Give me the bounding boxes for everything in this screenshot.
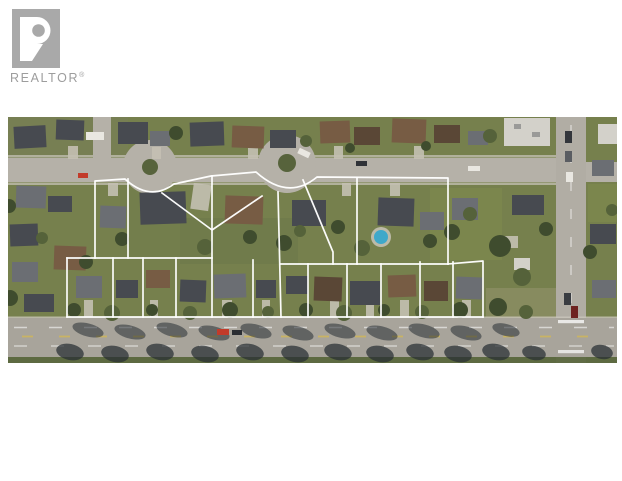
pool	[374, 230, 388, 244]
tree	[423, 234, 437, 248]
car	[232, 330, 242, 335]
tree	[513, 268, 531, 286]
tree	[539, 222, 553, 236]
tree	[378, 304, 390, 316]
tree	[583, 245, 597, 259]
driveway	[190, 183, 211, 211]
house	[190, 121, 225, 146]
tree	[299, 303, 313, 317]
house	[592, 160, 614, 176]
rv	[86, 132, 104, 140]
south-verge	[8, 357, 617, 363]
tree	[489, 298, 507, 316]
house	[13, 125, 46, 149]
house	[116, 280, 138, 298]
tree	[222, 302, 238, 318]
tree	[606, 204, 618, 216]
house	[598, 124, 617, 144]
house	[48, 196, 72, 212]
house	[420, 212, 444, 230]
tree	[67, 303, 81, 317]
house	[512, 195, 544, 215]
car	[78, 173, 88, 178]
crosswalk	[558, 350, 584, 353]
cul-de-sac-island	[278, 154, 296, 172]
tree	[169, 126, 183, 140]
tree	[336, 305, 352, 321]
house	[16, 185, 47, 208]
driveway	[108, 183, 118, 196]
tree	[345, 143, 355, 153]
tree	[300, 135, 312, 147]
house	[139, 191, 186, 225]
house	[214, 273, 247, 298]
tree	[421, 141, 431, 151]
house	[320, 120, 351, 143]
tree	[483, 129, 497, 143]
tree	[2, 199, 16, 213]
listing-image: REALTOR®	[0, 0, 622, 481]
driveway	[390, 183, 400, 196]
tree	[452, 302, 468, 318]
tree	[463, 207, 477, 221]
house	[146, 270, 170, 288]
car	[571, 306, 578, 318]
car	[565, 131, 572, 143]
car	[356, 161, 367, 166]
house	[232, 125, 265, 148]
house	[100, 206, 127, 229]
house	[392, 118, 427, 143]
rooftop-unit	[532, 132, 540, 137]
tree	[104, 305, 120, 321]
driveway	[400, 300, 409, 317]
driveway	[334, 146, 343, 159]
tree	[444, 224, 460, 240]
house	[456, 277, 483, 300]
tree	[79, 255, 93, 269]
car	[566, 172, 573, 182]
tree	[331, 220, 345, 234]
house	[424, 281, 448, 301]
car	[565, 151, 572, 162]
car	[564, 293, 571, 305]
house	[286, 276, 308, 294]
car	[468, 166, 480, 171]
house	[12, 262, 38, 282]
house	[24, 294, 54, 312]
tree	[489, 235, 511, 257]
tree	[519, 305, 533, 319]
house	[256, 280, 276, 298]
house	[378, 197, 415, 226]
aerial-photo	[0, 0, 622, 481]
house	[150, 131, 170, 146]
house	[434, 125, 460, 143]
house	[118, 122, 148, 144]
house	[350, 281, 380, 305]
tree	[243, 230, 257, 244]
tree	[115, 232, 129, 246]
car	[217, 329, 229, 335]
house	[180, 280, 207, 303]
driveway	[248, 147, 258, 159]
house	[270, 130, 296, 148]
house	[388, 275, 417, 298]
tree	[294, 225, 306, 237]
tree	[36, 232, 48, 244]
tree	[146, 304, 158, 316]
house	[590, 224, 616, 244]
lawn-patch	[588, 184, 617, 222]
driveway	[84, 300, 93, 317]
house	[10, 224, 39, 247]
house	[354, 127, 380, 145]
tree	[197, 239, 213, 255]
crosswalk	[558, 320, 584, 323]
rooftop-unit	[514, 124, 521, 129]
tree	[2, 290, 18, 306]
house	[76, 276, 102, 298]
tree	[183, 306, 197, 320]
house	[314, 277, 343, 302]
driveway	[342, 183, 351, 196]
cul-de-sac-island	[142, 159, 158, 175]
driveway	[152, 147, 161, 159]
house	[56, 120, 85, 141]
commercial-building	[504, 118, 550, 146]
house	[592, 280, 616, 298]
driveway	[68, 146, 78, 159]
